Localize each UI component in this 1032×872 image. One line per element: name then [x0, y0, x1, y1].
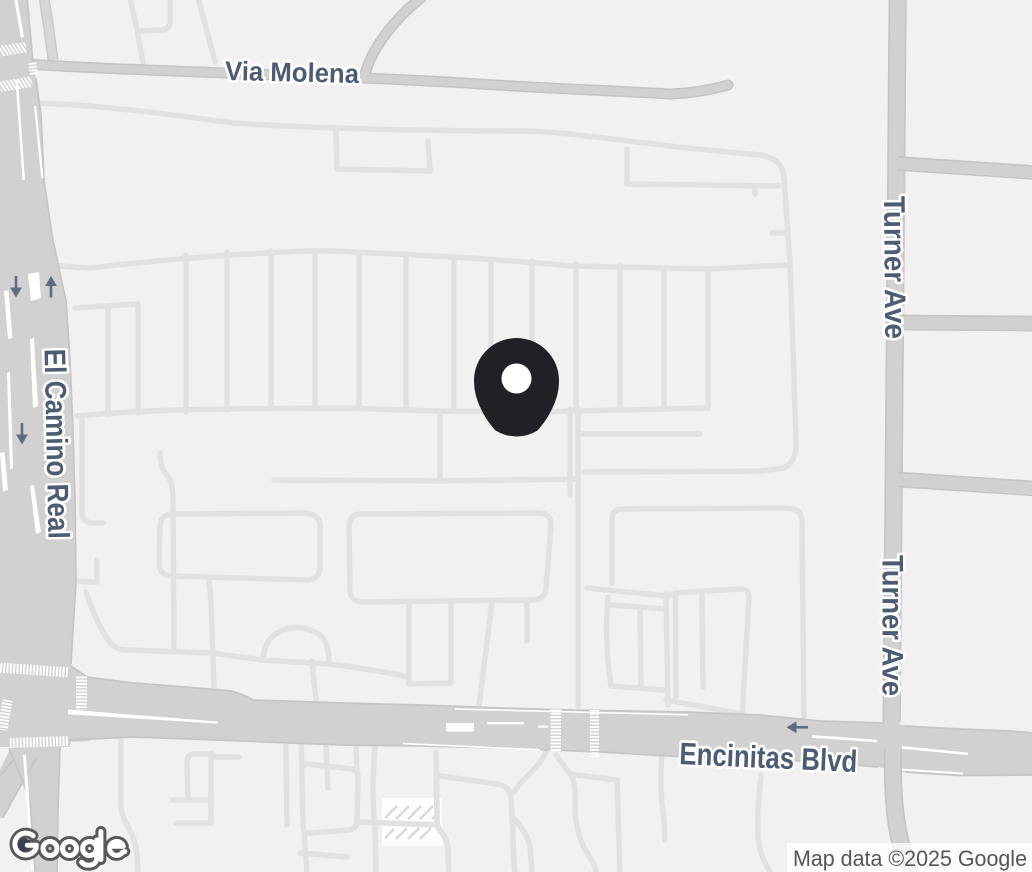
- svg-text:Turner Ave: Turner Ave: [876, 555, 909, 696]
- svg-text:El Camino Real: El Camino Real: [38, 348, 75, 539]
- svg-text:Via Molena: Via Molena: [225, 56, 361, 89]
- svg-text:Turner Ave: Turner Ave: [877, 196, 911, 339]
- svg-text:Map data ©2025 Google: Map data ©2025 Google: [793, 846, 1027, 871]
